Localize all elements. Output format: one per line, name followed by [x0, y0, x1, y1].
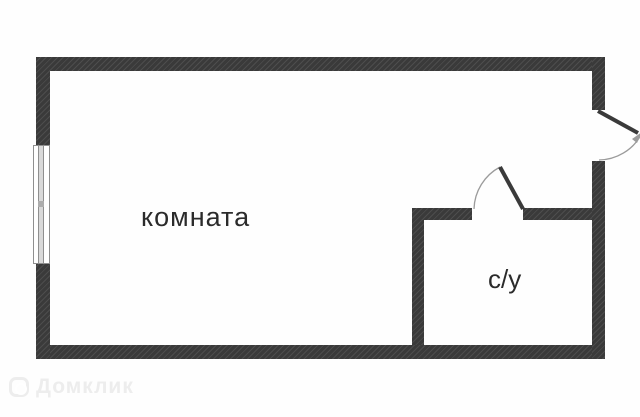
entry-door-leaf — [598, 111, 638, 133]
bathroom-door-swing-arc — [474, 167, 500, 209]
floor-plan: комната с/у Домклик — [0, 0, 640, 417]
room-label-komnata: комната — [141, 204, 250, 231]
watermark-label: Домклик — [36, 375, 134, 399]
room-label-su: с/у — [488, 266, 521, 292]
door-layer — [0, 0, 640, 417]
watermark: Домклик — [9, 375, 134, 399]
bathroom-door-leaf — [500, 167, 523, 209]
domclick-logo-icon — [9, 377, 29, 397]
